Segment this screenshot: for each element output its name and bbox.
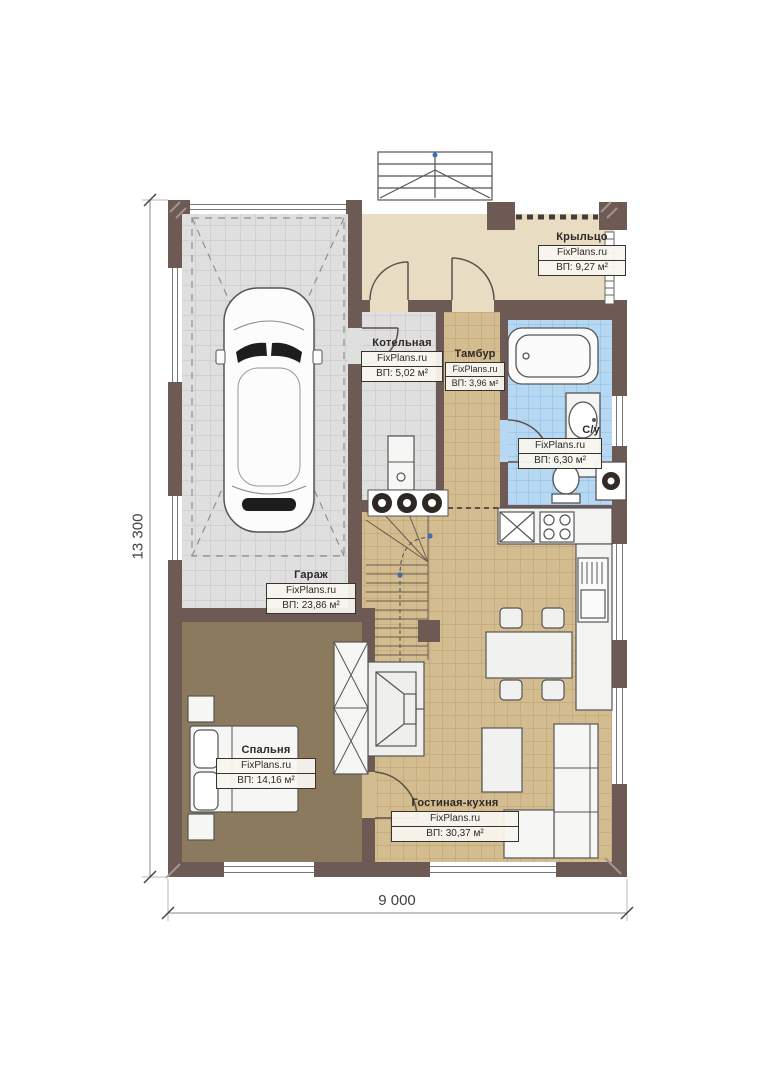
room-label-garage: Гараж FixPlans.ru ВП: 23,86 м² [266, 569, 356, 614]
dimension-width-value: 9 000 [378, 892, 416, 909]
brand-label: FixPlans.ru [446, 363, 504, 376]
area-label: ВП: 3,96 м² [446, 376, 504, 390]
stair-column [418, 620, 440, 642]
room-name: Гараж [266, 569, 356, 582]
stove [540, 512, 574, 542]
wardrobe [334, 642, 368, 774]
boiler-unit [388, 436, 414, 490]
chair [542, 680, 564, 700]
toilet [552, 464, 580, 503]
room-label-table: FixPlans.ru ВП: 14,16 м² [216, 758, 316, 789]
car-mirror [313, 350, 322, 364]
room-label-table: FixPlans.ru ВП: 3,96 м² [445, 362, 505, 391]
room-label-table: FixPlans.ru ВП: 23,86 м² [266, 583, 356, 614]
dining-table [486, 632, 572, 678]
room-label-table: FixPlans.ru ВП: 6,30 м² [518, 438, 602, 469]
room-label-bedroom: Спальня FixPlans.ru ВП: 14,16 м² [216, 744, 316, 789]
chair [500, 608, 522, 628]
area-label: ВП: 9,27 м² [539, 260, 625, 275]
area-label: ВП: 30,37 м² [392, 826, 518, 841]
fridge [578, 558, 608, 622]
chair [500, 680, 522, 700]
porch-pillar [599, 202, 627, 230]
tambour-floor [436, 312, 500, 512]
room-name: Котельная [361, 337, 443, 350]
room-label-bath: С/у FixPlans.ru ВП: 6,30 м² [518, 424, 602, 469]
car-mirror [216, 350, 225, 364]
brand-label: FixPlans.ru [267, 584, 355, 598]
room-name: Тамбур [445, 348, 505, 361]
garage-door [190, 200, 346, 214]
brand-label: FixPlans.ru [217, 759, 315, 773]
floor-plan-drawing [0, 0, 763, 1080]
coffee-table [482, 728, 522, 792]
pillow [194, 730, 218, 768]
room-name: С/у [518, 424, 602, 437]
window-kitchen-right [612, 544, 627, 640]
window-living-bottom [430, 862, 556, 877]
area-label: ВП: 14,16 м² [217, 773, 315, 788]
window-garage-left-1 [168, 268, 182, 382]
brand-label: FixPlans.ru [519, 439, 601, 453]
porch-pillar [487, 202, 515, 230]
room-name: Крыльцо [538, 231, 626, 244]
kitchen-sink [500, 512, 534, 542]
entry-steps [378, 152, 492, 200]
room-name: Спальня [216, 744, 316, 757]
dimension-width-label: 9 000 [352, 892, 442, 909]
area-label: ВП: 6,30 м² [519, 453, 601, 468]
rear-window [242, 498, 296, 511]
car [216, 288, 322, 532]
window-bedroom-bottom [224, 862, 314, 877]
burner-circles [372, 493, 442, 513]
dimension-height-label: 13 300 [130, 497, 147, 577]
room-label-living: Гостиная-кухня FixPlans.ru ВП: 30,37 м² [391, 797, 519, 842]
pillow [194, 772, 218, 810]
area-label: ВП: 5,02 м² [362, 366, 442, 381]
brand-label: FixPlans.ru [362, 352, 442, 366]
room-label-table: FixPlans.ru ВП: 9,27 м² [538, 245, 626, 276]
room-label-tambour: Тамбур FixPlans.ru ВП: 3,96 м² [445, 348, 505, 391]
room-label-porch: Крыльцо FixPlans.ru ВП: 9,27 м² [538, 231, 626, 276]
brand-label: FixPlans.ru [539, 246, 625, 260]
room-label-table: FixPlans.ru ВП: 5,02 м² [361, 351, 443, 382]
dimension-height-value: 13 300 [130, 514, 147, 560]
floor-plan-page: Крыльцо FixPlans.ru ВП: 9,27 м² Котельна… [0, 0, 763, 1080]
window-living-right [612, 688, 627, 784]
window-garage-left-2 [168, 496, 182, 560]
nightstand [188, 814, 214, 840]
fireplace [368, 662, 424, 756]
room-name: Гостиная-кухня [391, 797, 519, 810]
area-label: ВП: 23,86 м² [267, 598, 355, 613]
bathtub [508, 328, 598, 384]
room-label-table: FixPlans.ru ВП: 30,37 м² [391, 811, 519, 842]
window-bath-right [612, 396, 627, 446]
brand-label: FixPlans.ru [392, 812, 518, 826]
nightstand [188, 696, 214, 722]
room-label-boiler: Котельная FixPlans.ru ВП: 5,02 м² [361, 337, 443, 382]
chair [542, 608, 564, 628]
